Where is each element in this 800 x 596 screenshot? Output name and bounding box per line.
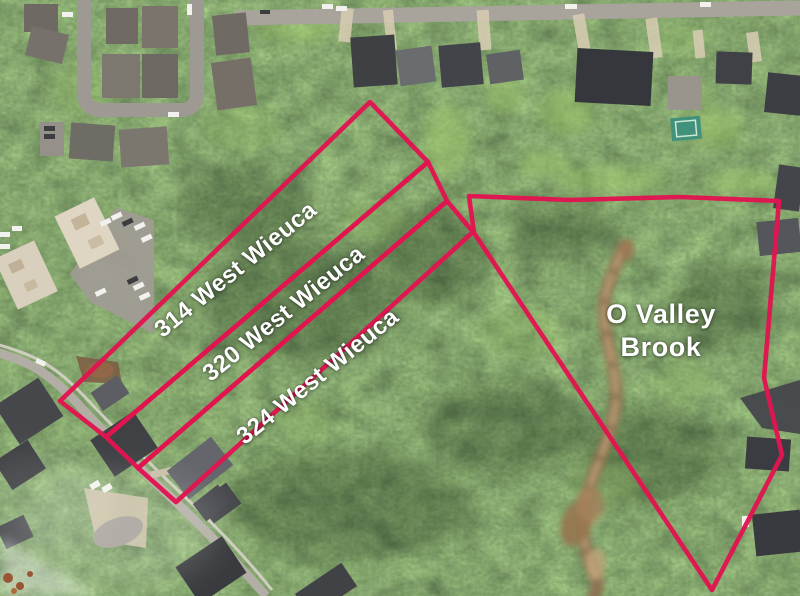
aerial-photo: 314 West Wieuca 320 West Wieuca 324 West… (0, 0, 800, 596)
boundary-parcel-o-valley-brook (469, 196, 782, 590)
parcel-label-line-1: O Valley (606, 298, 716, 331)
parcel-label-o-valley-brook: O Valley Brook (606, 298, 716, 364)
boundary-parcel-324 (138, 201, 473, 502)
parcel-label-line-2: Brook (606, 331, 716, 364)
